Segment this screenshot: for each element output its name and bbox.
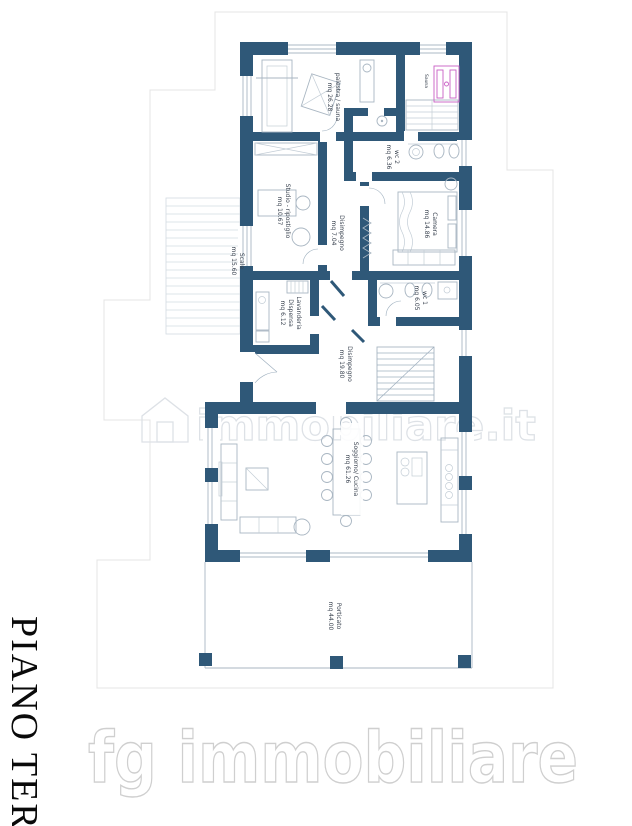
sliding-door — [240, 548, 306, 564]
svg-text:mq 26.28: mq 26.28 — [326, 83, 333, 112]
svg-text:mq 6.36: mq 6.36 — [385, 145, 392, 170]
gym-furniture — [256, 60, 374, 132]
sauna-furniture — [406, 66, 459, 130]
svg-text:wc 1: wc 1 — [421, 291, 428, 305]
porch-pillar — [199, 653, 212, 666]
svg-text:mq 19.80: mq 19.80 — [338, 350, 345, 379]
window — [420, 41, 446, 56]
room-label-sauna: Sauna — [423, 74, 429, 88]
svg-text:mq 14.86: mq 14.86 — [423, 210, 430, 239]
floor-title: PIANO TERR — [3, 616, 45, 826]
room-label-studio: Studio - ripostigliomq 10.67 — [276, 184, 291, 239]
room-label-porticato: Porticatomq 44.00 — [327, 602, 342, 631]
shower-fixture — [434, 66, 459, 102]
svg-text:palestra / sauna: palestra / sauna — [334, 73, 341, 122]
window — [457, 210, 474, 256]
porch-pillar — [458, 655, 471, 668]
svg-text:mq 10.67: mq 10.67 — [276, 197, 283, 226]
room-label-soggiorno: Soggiorno/ Cucinamq 61.26 — [341, 423, 363, 515]
svg-text:Camera: Camera — [431, 212, 438, 236]
svg-text:Disimpegno: Disimpegno — [346, 346, 353, 382]
svg-text:Sauna: Sauna — [423, 74, 429, 88]
svg-text:mq 6.05: mq 6.05 — [413, 286, 420, 311]
window — [457, 432, 474, 476]
window — [288, 41, 336, 56]
svg-text:mq 61.26: mq 61.26 — [344, 455, 351, 484]
window — [457, 140, 474, 166]
external-stairs — [166, 198, 240, 334]
passage-opening — [316, 400, 346, 416]
watermark-bottom-text: fg immobiliare — [88, 717, 578, 799]
svg-text:PIANO TERR: PIANO TERR — [3, 616, 45, 826]
floorplan-canvas: immobiliare.it — [0, 0, 632, 826]
window — [203, 428, 220, 468]
room-label-camera: Cameramq 14.86 — [423, 210, 438, 239]
room-label-wc1: wc 1mq 6.05 — [413, 286, 428, 311]
porch-pillar — [330, 656, 343, 669]
svg-text:mq 15.60: mq 15.60 — [230, 247, 237, 276]
room-label-lavanderia: LavanderiaDispensa mq 6.12 — [279, 296, 302, 330]
svg-text:mq 44.00: mq 44.00 — [327, 602, 334, 631]
room-label-palestra: palestra / saunamq 26.28 — [326, 73, 341, 122]
svg-text:Soggiorno/ Cucina: Soggiorno/ Cucina — [352, 442, 359, 497]
svg-text:Disimpegno: Disimpegno — [338, 215, 345, 251]
svg-text:Dispensa: Dispensa — [287, 299, 294, 327]
svg-text:mq 6.12: mq 6.12 — [279, 301, 286, 326]
svg-text:Lavanderia: Lavanderia — [295, 296, 302, 330]
entry-door-opening — [238, 352, 255, 382]
svg-text:Studio - ripostiglio: Studio - ripostiglio — [284, 184, 291, 239]
window — [238, 76, 255, 116]
window — [203, 482, 220, 524]
paper-frame — [97, 12, 553, 688]
svg-text:wc 2: wc 2 — [393, 150, 400, 164]
room-label-disimpegno-1: Disimpegnomq 7.04 — [330, 215, 345, 251]
interior-staircase — [377, 347, 434, 401]
room-label-disimpegno-2: Disimpegnomq 19.80 — [338, 346, 353, 382]
window — [457, 330, 474, 356]
sliding-door — [330, 548, 428, 564]
window — [457, 490, 474, 534]
svg-text:mq 7.04: mq 7.04 — [330, 221, 337, 246]
room-label-wc2: wc 2mq 6.36 — [385, 145, 400, 170]
bedroom-furniture — [363, 178, 457, 265]
svg-text:Porticato: Porticato — [335, 603, 342, 630]
svg-text:Scale: Scale — [238, 253, 245, 269]
